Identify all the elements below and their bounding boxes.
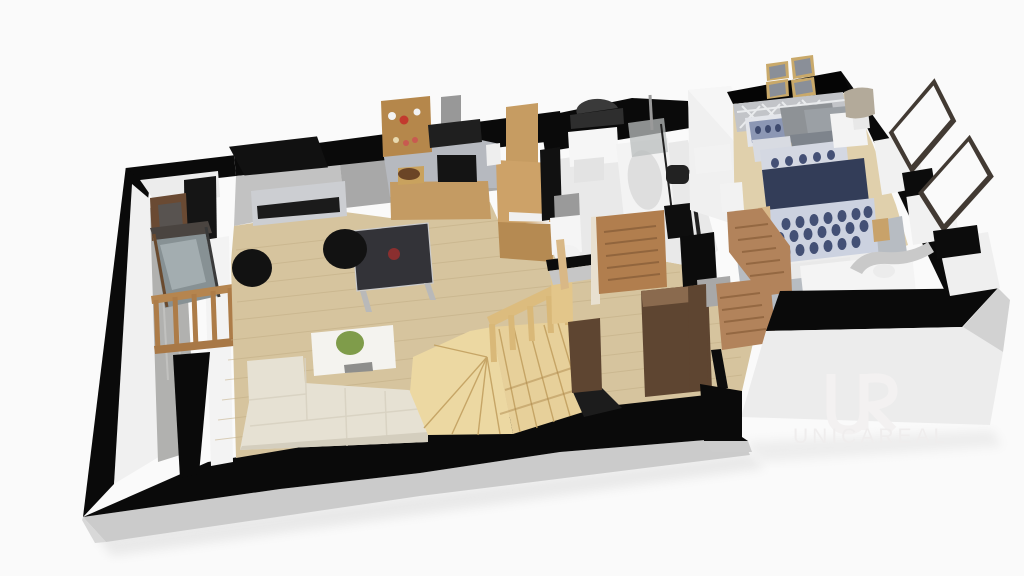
svg-text:UNICAREAL: UNICAREAL — [793, 425, 949, 448]
